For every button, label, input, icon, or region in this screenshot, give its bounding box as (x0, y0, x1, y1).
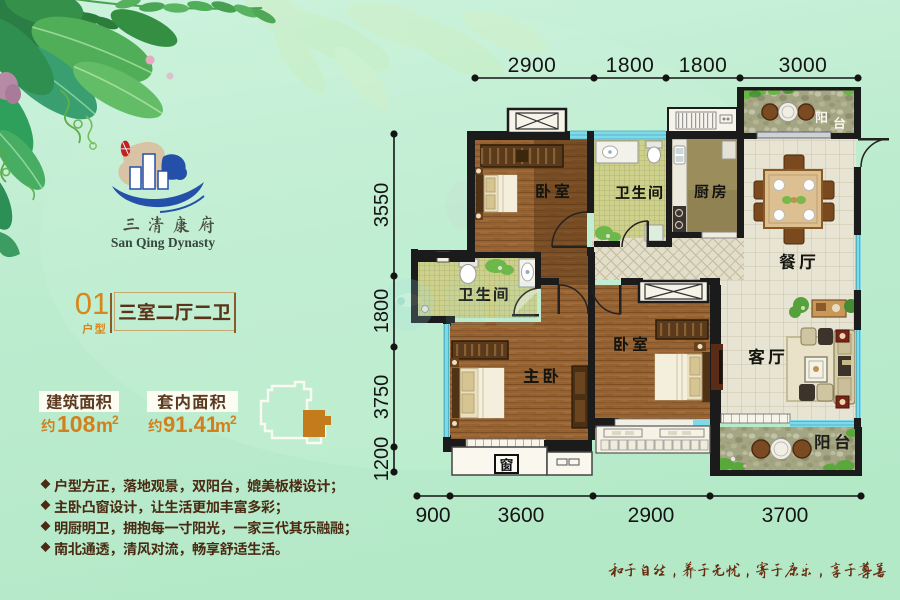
svg-text:3750: 3750 (371, 375, 393, 420)
svg-text:3700: 3700 (762, 504, 809, 527)
svg-text:3000: 3000 (779, 54, 828, 77)
svg-text:3550: 3550 (371, 183, 393, 228)
svg-text:108: 108 (57, 411, 96, 437)
svg-text:2900: 2900 (628, 504, 675, 527)
svg-text:m: m (96, 416, 113, 437)
svg-text:1200: 1200 (371, 437, 393, 482)
svg-text:2: 2 (112, 413, 119, 427)
svg-text:m: m (215, 416, 231, 436)
svg-text:1800: 1800 (679, 54, 728, 77)
svg-text:900: 900 (415, 504, 450, 527)
svg-text:San Qing Dynasty: San Qing Dynasty (111, 235, 216, 250)
svg-text:91.41: 91.41 (163, 412, 218, 437)
svg-text:2900: 2900 (508, 54, 557, 77)
svg-text:1800: 1800 (371, 289, 393, 334)
svg-text:2: 2 (230, 413, 237, 427)
svg-text:3600: 3600 (498, 504, 545, 527)
svg-text:01: 01 (75, 286, 109, 321)
svg-text:1800: 1800 (606, 54, 655, 77)
